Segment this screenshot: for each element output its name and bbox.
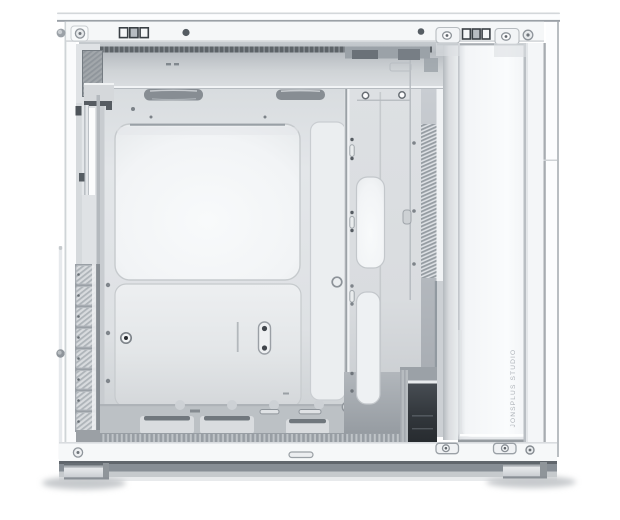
svg-text:JONSPLUS STUDIO: JONSPLUS STUDIO bbox=[510, 349, 517, 428]
